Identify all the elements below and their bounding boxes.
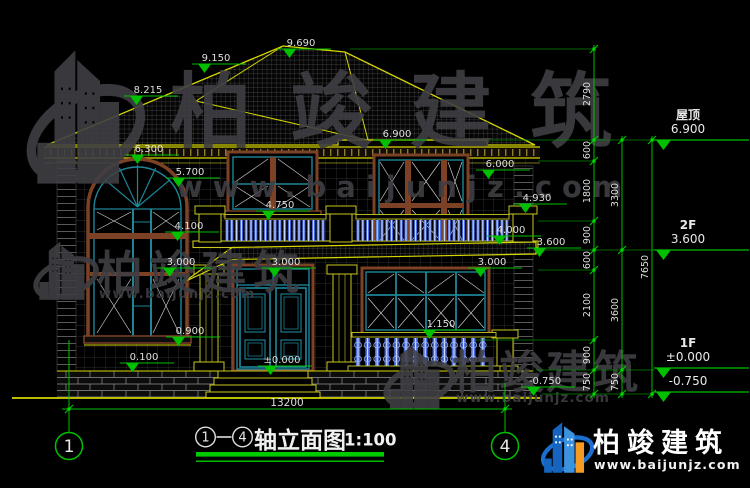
axis-bubble-left: 1 [56,433,83,460]
drawing-scale: 1:100 [344,431,397,450]
balcony-balustrade [227,220,507,241]
drawing-title-block: 1 4 轴立面图 1:100 [196,427,397,462]
title-axis-from: 1 [201,431,209,446]
brand-name: 柏竣建筑 [593,427,729,459]
level-marks: 屋顶6.9002F3.6001F±0.000-0.750 [654,108,749,402]
watermark-name: 柏竣建筑 [170,65,650,160]
watermark-url: www.baijunjz.com [99,287,256,302]
axis-bubble-right: 4 [492,433,519,460]
drawing-title: 轴立面图 [254,427,346,454]
title-underline-thick [196,452,384,457]
dim-chain-value: 600 [582,141,593,159]
level-mark: 1F±0.000 [654,336,749,378]
dim-chain-value: 1800 [582,179,593,203]
brand-logo-icon [539,422,597,475]
level-mark: -0.750 [654,374,749,402]
elevation-annotation-value: 3.000 [272,257,301,268]
elevation-annotation-value: 3.000 [478,257,507,268]
overall-width-dim: 13200 [270,397,303,409]
level-mark: 2F3.600 [654,218,749,260]
elevation-drawing-canvas: 柏竣建筑 www.baijunjz.com 柏竣建筑 www.baijunjz.… [0,0,750,488]
level-mark-label: 1F [680,336,697,350]
elevation-annotation-value: 4.100 [175,221,204,232]
porch-rail-top [352,333,496,338]
elevation-annotation-value: 0.100 [130,352,159,363]
level-mark-value: 6.900 [671,122,705,136]
dim-chain-value: 900 [582,226,593,244]
elevation-annotation-value: 3.000 [167,257,196,268]
dim-chain-value: 2100 [582,293,593,317]
entry-steps [206,371,320,398]
axis-number: 4 [500,437,511,457]
elevation-annotation-value: 6.900 [383,129,412,140]
level-mark-label: 2F [680,218,697,232]
dim-chain-value: 750 [582,373,593,391]
elevation-annotation-value: 9.690 [287,38,316,49]
dim-chain-value: 7650 [640,255,651,279]
dim-chain-value: 3300 [610,183,621,207]
dim-chain-value: 2790 [582,82,593,106]
elevation-annotation-value: 3.600 [537,237,566,248]
brand-url: www.baijunjz.com [594,457,741,472]
watermark-url: www.baijunjz.com [176,170,632,204]
cad-viewport: 柏竣建筑 www.baijunjz.com 柏竣建筑 www.baijunjz.… [0,0,750,488]
elevation-annotation-value: 0.900 [176,326,205,337]
elevation-annotation-value: 6.000 [486,159,515,170]
elevation-annotation-value: 5.700 [176,167,205,178]
title-underline-thin [196,461,384,462]
level-mark-label: 屋顶 [676,108,700,122]
dim-chain-value: 900 [582,346,593,364]
window-1f-right [362,268,489,334]
level-mark-value: -0.750 [669,374,708,388]
dim-chain-value: 3600 [610,298,621,322]
title-axis-to: 4 [238,431,246,446]
dim-chain-value: 750 [610,373,621,391]
elevation-annotation-value: 4.930 [523,193,552,204]
elevation-annotation-value: 9.150 [202,53,231,64]
elevation-annotation-value: 8.215 [134,85,163,96]
dim-chain-value: 600 [582,251,593,269]
brand-banner: 柏竣建筑 www.baijunjz.com [539,422,741,475]
elevation-annotation-value: -0.750 [529,376,561,387]
elevation-annotation-value: 6.300 [135,144,164,155]
level-mark-value: 3.600 [671,232,705,246]
dim-chain: 7650 [640,136,656,398]
elevation-annotation-value: ±0.000 [263,355,300,366]
level-mark-value: ±0.000 [666,350,710,364]
elevation-annotation-value: 4.000 [497,225,526,236]
axis-number: 1 [64,437,75,457]
elevation-annotation-value: 1.150 [427,319,456,330]
elevation-annotation-value: 4.750 [266,200,295,211]
level-mark: 屋顶6.900 [654,108,749,150]
